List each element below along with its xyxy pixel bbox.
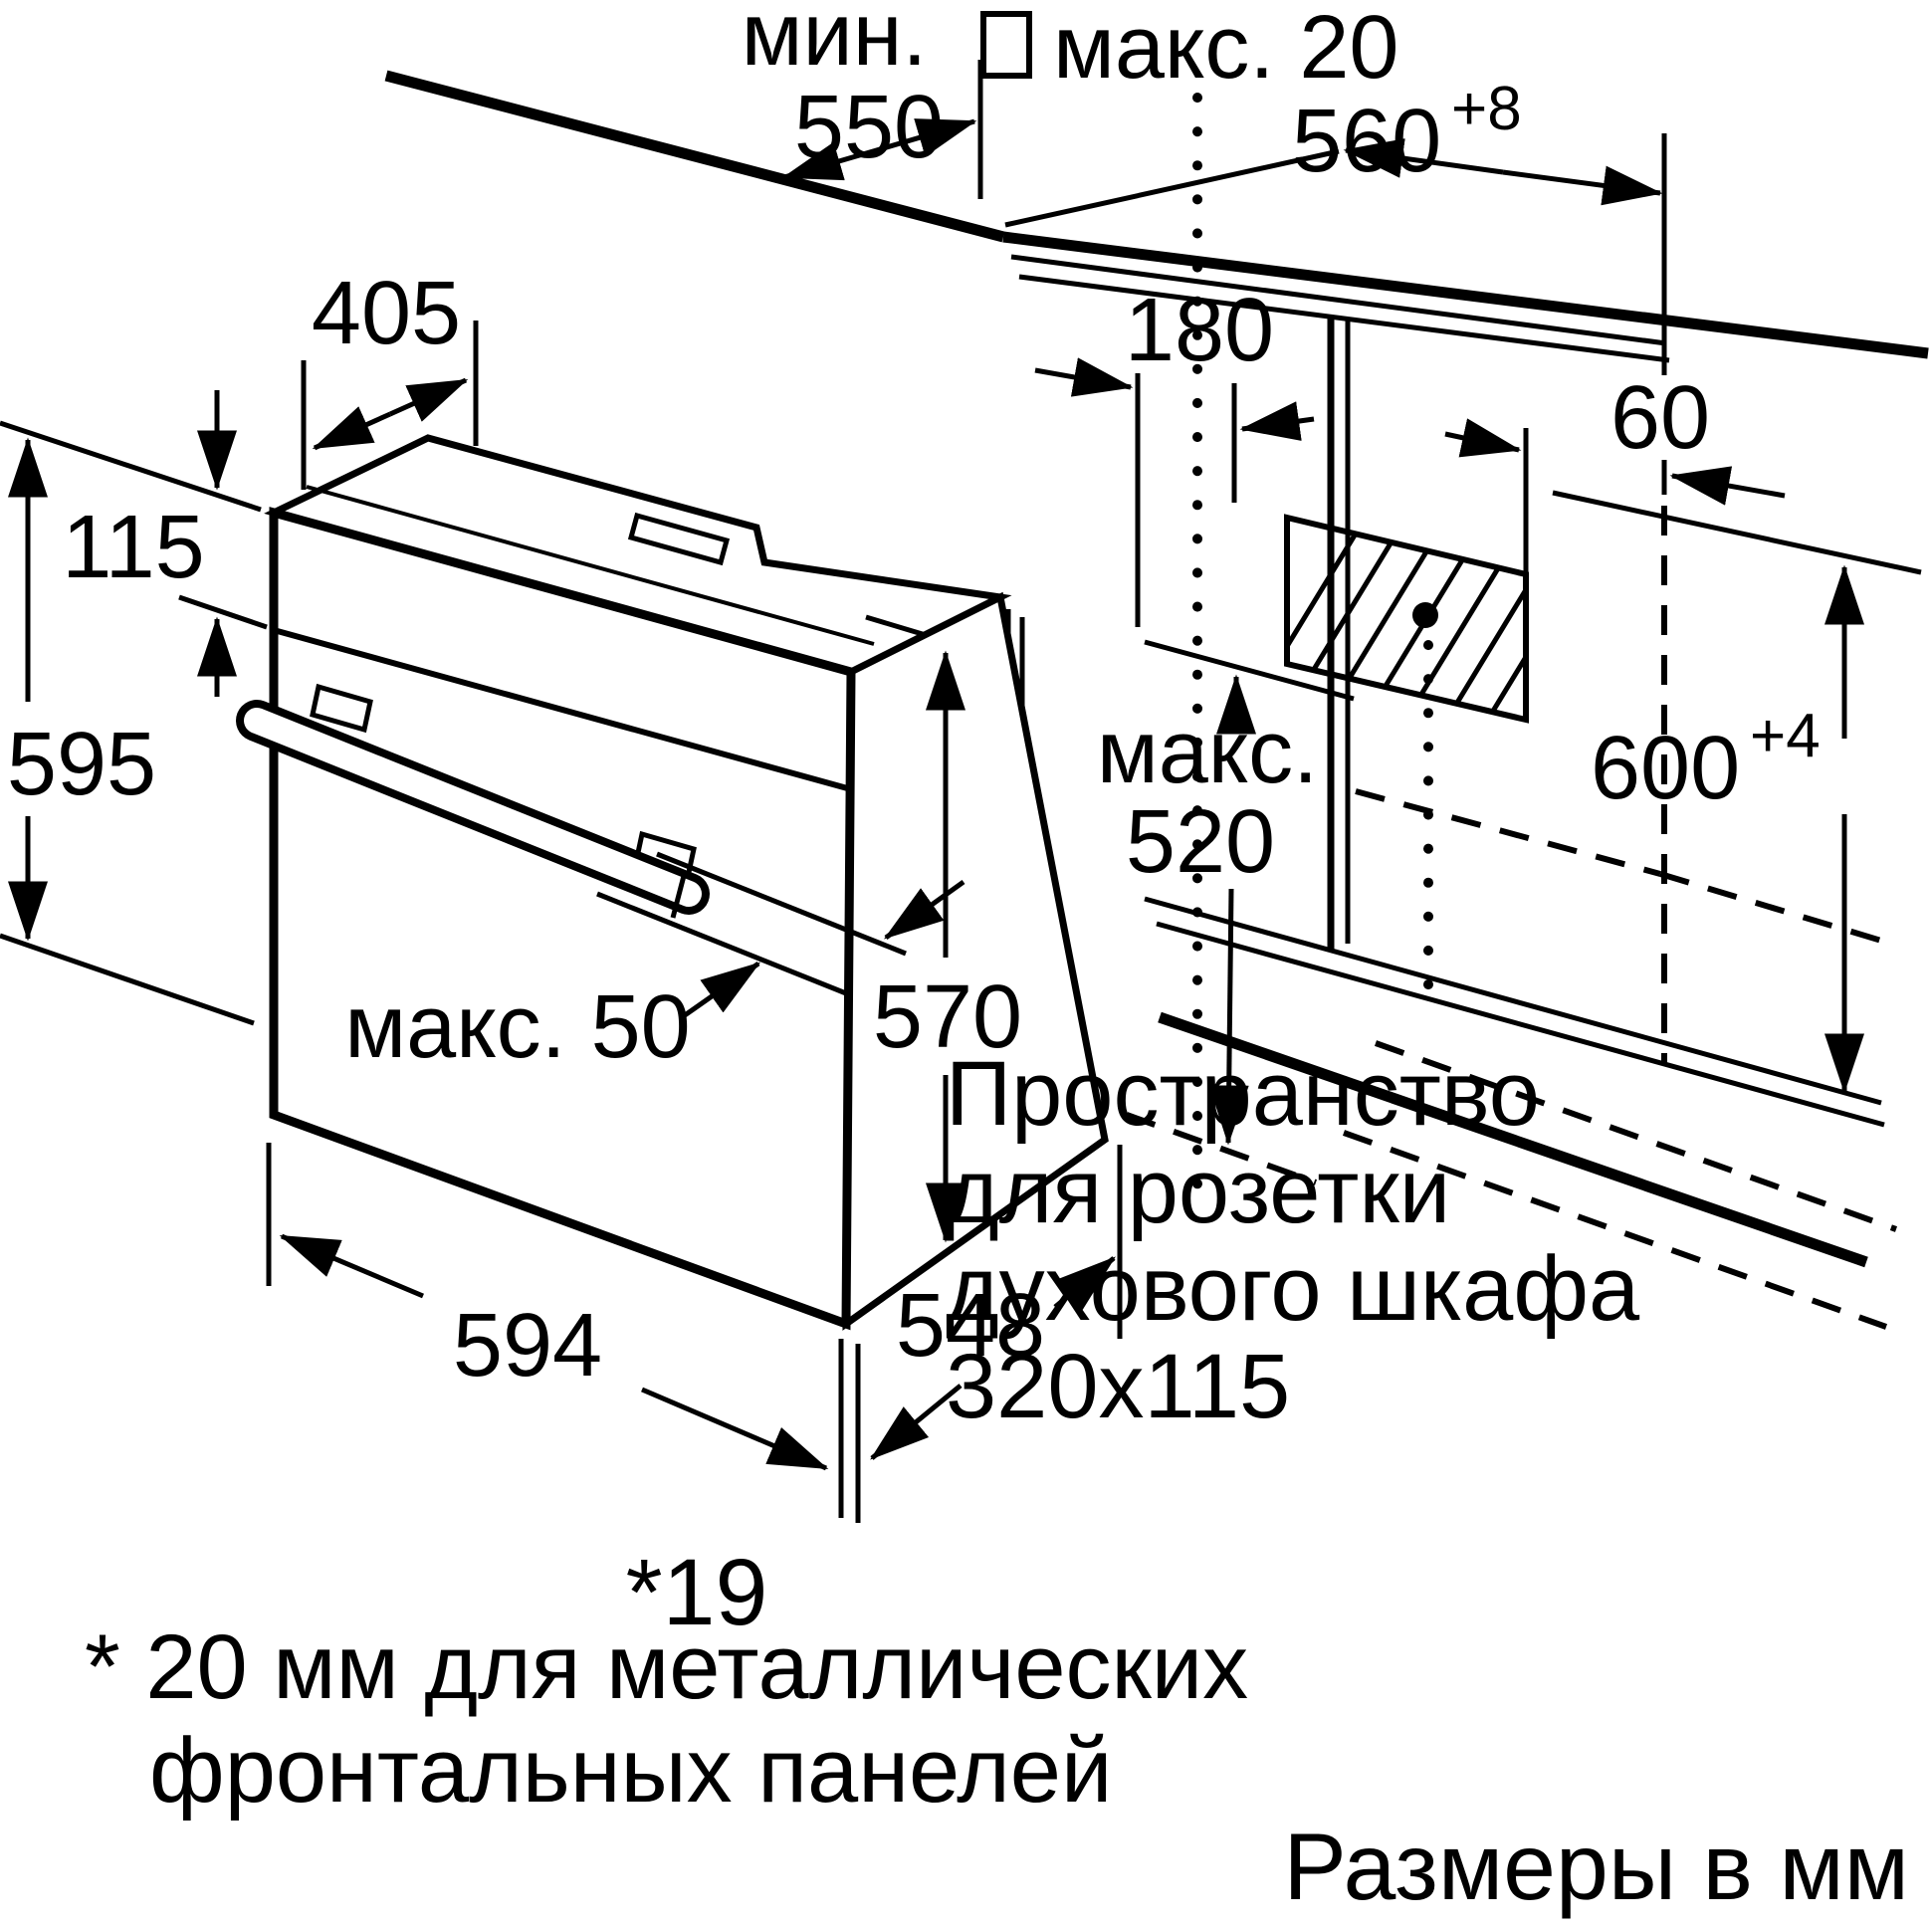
dim-520-label: 520 [1126,792,1275,892]
dim-594-label: 594 [453,1296,602,1395]
dim-60-label: 60 [1610,368,1710,468]
socket-center-dot [1412,602,1438,628]
dim-405-label: 405 [312,264,461,363]
dim-600-tolerance: +4 [1750,702,1821,770]
socket-note-line2: для розетки [946,1141,1450,1242]
socket-note-line1: Пространство [946,1043,1540,1145]
dim-560-tolerance: +8 [1451,75,1522,143]
dim-600: 600 +4 [1591,567,1844,1091]
dim-550-prefix: мин. [742,0,928,85]
dim-560-label: 560 [1292,92,1441,191]
dim-115-label: 115 [62,498,204,597]
dim-550-label: 550 [794,78,944,177]
footnote-line2: фронтальных панелей [149,1720,1112,1822]
dim-max50-label: макс. 50 [344,977,690,1077]
dim-180-label: 180 [1125,281,1274,380]
dim-520-prefix: макс. [1097,703,1318,802]
dim-560: 560 +8 [1005,75,1664,495]
dim-600-label: 600 [1591,719,1740,818]
dim-115: 115 [0,390,267,697]
dim-min-550: мин. 550 [742,0,980,199]
socket-note-line4: 320x115 [946,1336,1290,1437]
dim-max20-label: макс. 20 [1053,0,1398,98]
dim-180: 180 [1035,281,1314,627]
footnote-line1: * 20 мм для металлических [85,1616,1248,1718]
square-symbol [983,14,1029,76]
right-flank-top-edge [1553,493,1921,572]
counter-thickness-line-2 [1019,277,1669,360]
dim-595-label: 595 [7,715,156,814]
oven-installation-diagram: 405 115 595 мин. 550 макс. 20 560 +8 [0,0,1931,1932]
units-note: Размеры в мм [1283,1815,1909,1920]
footnote: * 20 мм для металлических фронтальных па… [85,1616,1248,1822]
counter-thickness-line-1 [1011,257,1666,343]
niche-back-bottom-right-hidden [1660,874,1891,944]
installation-diagram-page: 405 115 595 мин. 550 макс. 20 560 +8 [0,0,1931,1932]
socket-note: Пространство для розетки духового шкафа … [946,1043,1640,1437]
socket-note-line3: духового шкафа [946,1238,1640,1340]
dim-max-20: макс. 20 [983,0,1398,98]
